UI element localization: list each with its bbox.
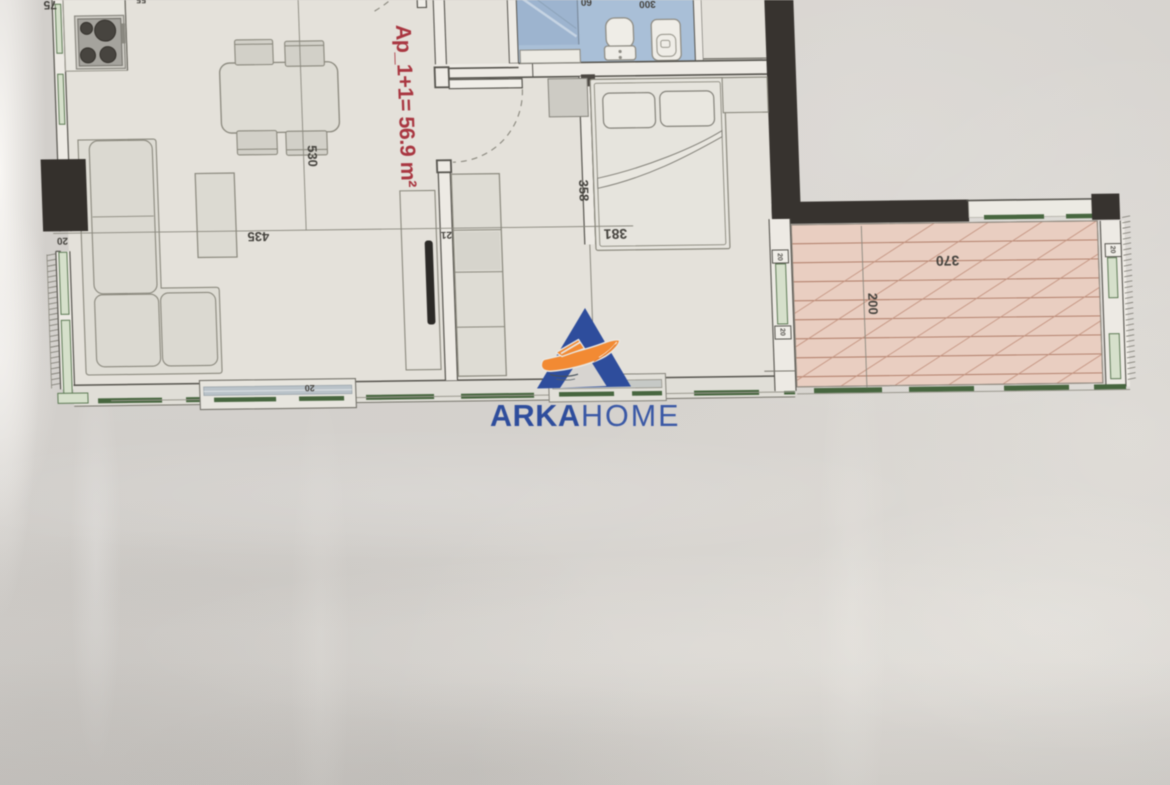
svg-text:20: 20: [1109, 246, 1116, 254]
svg-text:381: 381: [603, 226, 627, 242]
svg-text:75: 75: [43, 0, 57, 12]
svg-text:20: 20: [56, 235, 68, 246]
svg-text:20: 20: [305, 383, 315, 393]
svg-text:200: 200: [865, 293, 881, 315]
svg-text:20: 20: [587, 378, 597, 388]
svg-text:ARKA: ARKA: [490, 399, 581, 433]
svg-text:20: 20: [776, 253, 783, 261]
svg-text:21: 21: [440, 229, 452, 240]
svg-text:55: 55: [136, 0, 146, 5]
svg-text:370: 370: [935, 253, 959, 269]
svg-text:60: 60: [580, 0, 592, 7]
svg-text:358: 358: [576, 180, 592, 202]
svg-text:530: 530: [305, 145, 321, 167]
svg-text:300: 300: [638, 0, 656, 9]
svg-text:435: 435: [247, 229, 269, 244]
svg-text:20: 20: [778, 328, 785, 336]
svg-text:Ap_1+1= 56.9 m²: Ap_1+1= 56.9 m²: [391, 25, 421, 188]
svg-text:HOME: HOME: [581, 399, 681, 433]
